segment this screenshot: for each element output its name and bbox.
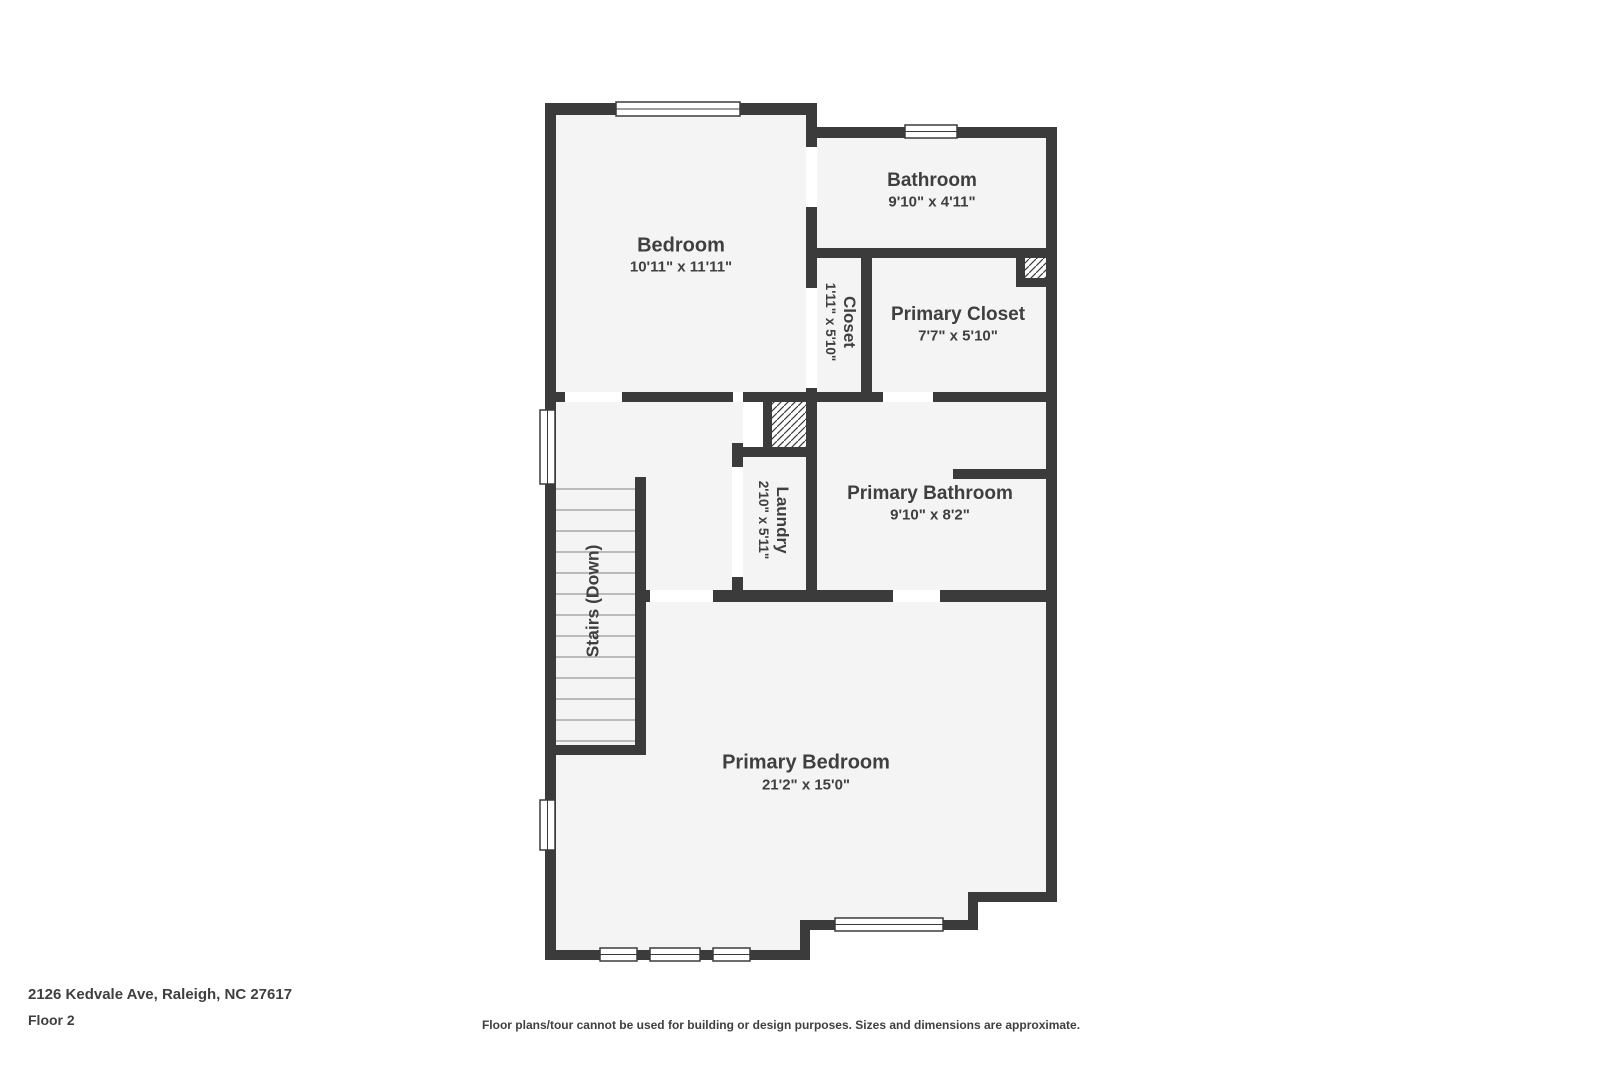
chase-nook <box>743 402 763 447</box>
hatch-box-closet <box>1025 258 1046 278</box>
door-bedroom-bathroom <box>806 147 817 207</box>
room-label-laundry: Laundry <box>772 481 793 560</box>
room-dims-closet: 1'11" x 5'10" <box>822 283 839 362</box>
window-bathroom-top <box>905 125 957 138</box>
window-primary-bedroom-left <box>540 800 555 850</box>
room-dims-primary-bedroom: 21'2" x 15'0" <box>762 777 850 794</box>
room-label-closet: Closet <box>839 283 860 362</box>
window-bedroom-top <box>616 102 740 116</box>
door-hall-laundry <box>732 467 743 577</box>
room-label-laundry-block: Laundry 2'10" x 5'11" <box>755 481 793 560</box>
room-dims-primary-bathroom: 9'10" x 8'2" <box>890 507 970 524</box>
room-label-closet-block: Closet 1'11" x 5'10" <box>822 283 860 362</box>
door-bathroom-primary-closet <box>883 392 933 402</box>
room-label-bathroom: Bathroom <box>887 170 977 192</box>
window-hall-left <box>540 410 555 484</box>
floor-plan-page: Bedroom 10'11" x 11'11" Bathroom 9'10" x… <box>0 0 1600 1067</box>
room-dims-bathroom: 9'10" x 4'11" <box>888 194 975 211</box>
address-text: 2126 Kedvale Ave, Raleigh, NC 27617 <box>28 986 292 1003</box>
room-label-primary-bedroom: Primary Bedroom <box>722 752 890 775</box>
room-label-bedroom: Bedroom <box>637 235 725 258</box>
wall-gap-slot <box>733 392 743 402</box>
room-label-primary-closet: Primary Closet <box>891 304 1025 326</box>
room-dims-primary-closet: 7'7" x 5'10" <box>918 328 998 345</box>
room-label-primary-bathroom: Primary Bathroom <box>847 483 1013 505</box>
door-hall-bedroom <box>565 392 622 402</box>
hatch-box-laundry <box>772 402 806 447</box>
window-bottom-1 <box>600 948 637 961</box>
door-primary-bedroom-bathroom <box>893 590 940 602</box>
window-bottom-3 <box>713 948 750 961</box>
stairs-label: Stairs (Down) <box>583 545 604 658</box>
floor-label: Floor 2 <box>28 1012 75 1028</box>
opening-bedroom-closet <box>806 288 817 388</box>
window-bottom-2 <box>650 948 700 961</box>
room-dims-bedroom: 10'11" x 11'11" <box>630 259 732 276</box>
door-hall-primary-bedroom <box>650 590 713 602</box>
disclaimer-text: Floor plans/tour cannot be used for buil… <box>482 1018 1080 1032</box>
room-dims-laundry: 2'10" x 5'11" <box>755 481 772 560</box>
window-notch <box>835 918 943 931</box>
floor-plan-drawing <box>0 0 1600 1067</box>
